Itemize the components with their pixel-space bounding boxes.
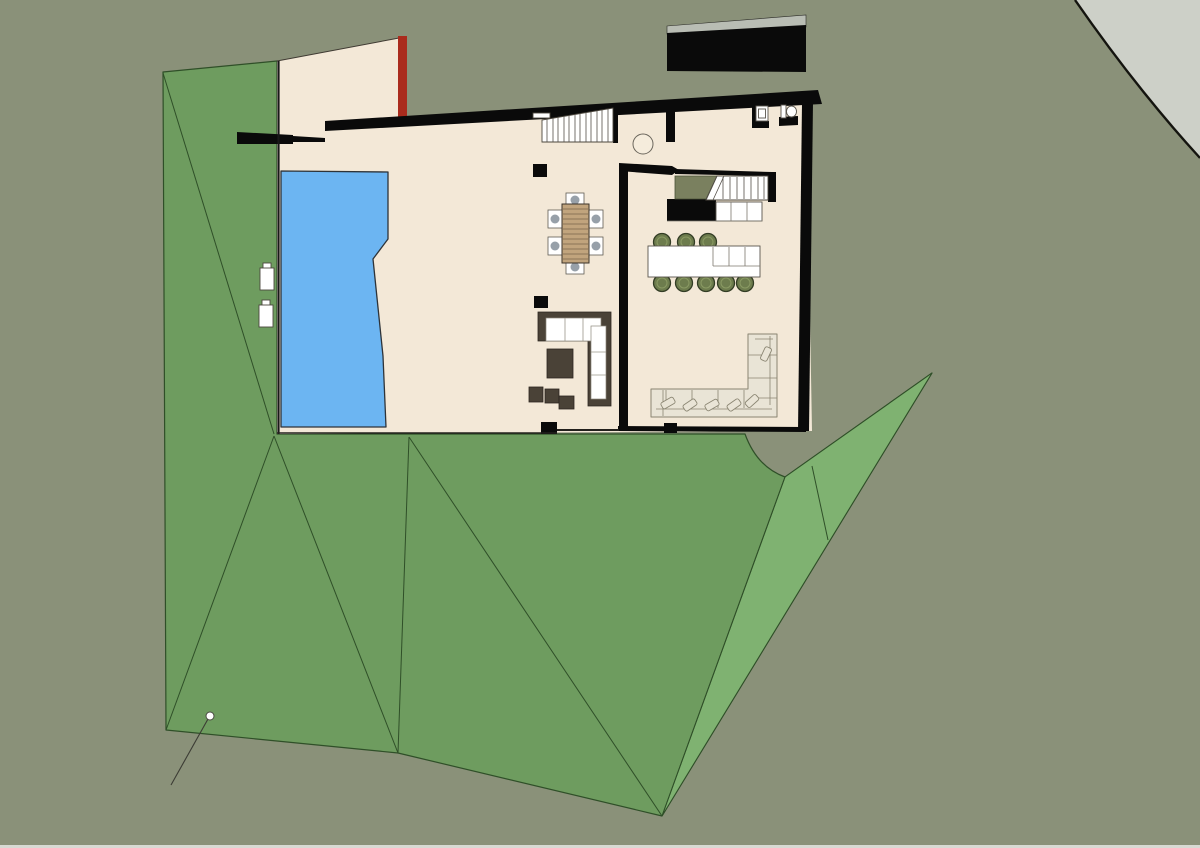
exterior-wall-south — [618, 426, 806, 432]
stair-jamb-wall — [768, 172, 776, 202]
kitchen-staircase — [675, 176, 768, 200]
sink-basin — [759, 109, 766, 118]
round-column — [633, 134, 653, 154]
dining-chair — [589, 210, 603, 228]
structural-column — [534, 296, 548, 308]
wall-chunk-south — [541, 422, 557, 434]
toilet-bowl — [787, 106, 797, 117]
kitchen-island — [648, 246, 760, 277]
carport-roof — [667, 25, 806, 72]
toilet-tank — [781, 105, 786, 118]
lounger-body — [260, 268, 274, 290]
site-plan-canvas — [0, 0, 1200, 848]
structural-column — [533, 164, 547, 177]
interior-wall-stair-stub — [613, 115, 618, 143]
red-accent-wall — [398, 36, 407, 122]
kitchen-counter — [667, 199, 716, 221]
dining-chair — [589, 237, 603, 255]
pouf — [559, 396, 574, 409]
coffee-table — [547, 349, 573, 378]
cabinet-run — [716, 202, 762, 221]
dining-chair — [548, 237, 562, 255]
lounger-body — [259, 305, 273, 327]
wall-mullion-south — [664, 423, 677, 433]
pouf — [545, 389, 559, 403]
bathroom-wall-sill — [752, 121, 769, 128]
island-top — [648, 246, 760, 277]
road-area — [1075, 0, 1200, 158]
interior-wall-hall-stub — [666, 104, 675, 142]
stair-skylight-sliver — [533, 113, 550, 118]
sofa-cushions — [591, 326, 606, 399]
pouf — [529, 387, 543, 402]
dining-chair — [548, 210, 562, 228]
site-plan-drawing — [0, 0, 1200, 848]
carport-structure — [667, 15, 806, 72]
interior-wall-kitchen-divider — [619, 164, 628, 430]
swimming-pool — [281, 171, 388, 427]
site-marker-dot — [206, 712, 214, 720]
